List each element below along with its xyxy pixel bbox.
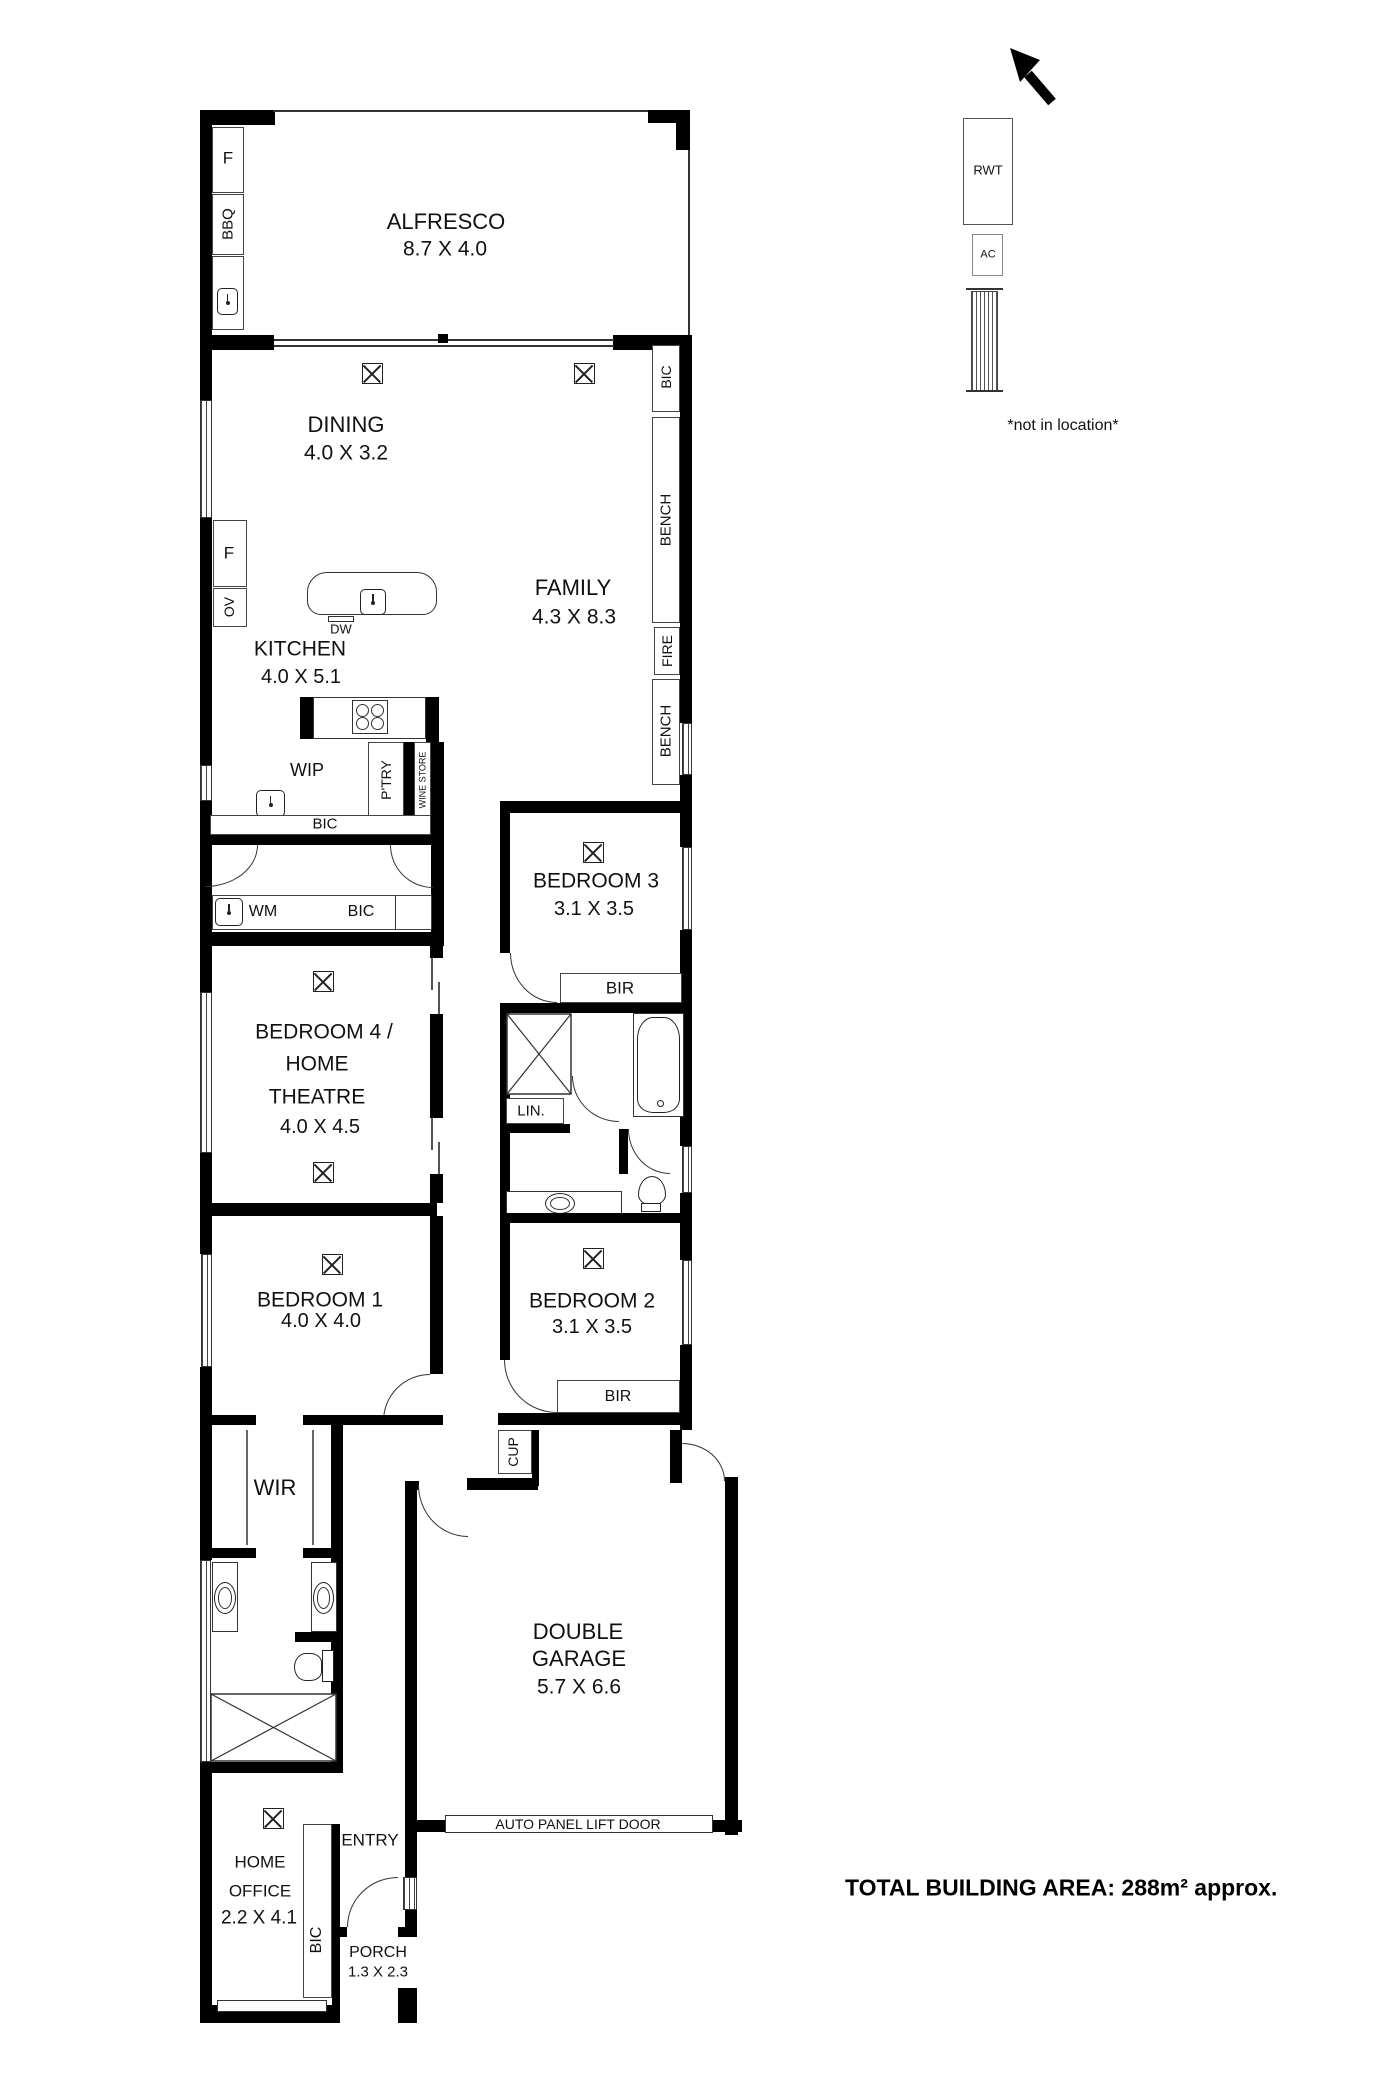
plan-shape bbox=[322, 1650, 334, 1682]
wall bbox=[200, 1367, 212, 1560]
north-arrow-icon bbox=[1000, 40, 1072, 112]
wall bbox=[500, 1003, 684, 1013]
bench-lower-label: BENCH bbox=[659, 705, 674, 758]
shower-icon bbox=[210, 1693, 337, 1762]
island-sink-icon bbox=[360, 589, 386, 615]
wall bbox=[500, 1223, 510, 1360]
window bbox=[682, 1146, 692, 1193]
room-label-garage: DOUBLE bbox=[533, 1621, 623, 1643]
door-arc bbox=[572, 1076, 619, 1122]
wall bbox=[405, 1773, 417, 1877]
wall bbox=[204, 1415, 256, 1425]
wall bbox=[204, 932, 444, 946]
toilet-icon bbox=[636, 1176, 670, 1212]
wall bbox=[680, 1193, 692, 1260]
window bbox=[682, 723, 692, 775]
wall bbox=[204, 1203, 437, 1216]
wall bbox=[680, 335, 692, 723]
wall bbox=[500, 801, 683, 813]
plan-shape bbox=[637, 1017, 680, 1113]
window bbox=[200, 400, 212, 518]
basin-icon bbox=[545, 1193, 575, 1214]
bir-bed3-label: BIR bbox=[606, 980, 634, 997]
bic-entry-cell bbox=[303, 1824, 332, 1998]
window-recess bbox=[217, 2000, 327, 2012]
bic-dining-label: BIC bbox=[659, 365, 673, 388]
pantry-label: P'TRY bbox=[379, 760, 393, 800]
room-label-dining: DINING bbox=[308, 414, 385, 436]
wip-sink-icon bbox=[256, 790, 285, 817]
wall bbox=[725, 1477, 738, 1835]
door-arc bbox=[205, 845, 258, 887]
wall bbox=[500, 1213, 687, 1223]
wall bbox=[200, 1548, 256, 1558]
room-label-bedroom2: BEDROOM 2 bbox=[529, 1291, 655, 1312]
total-area-text: TOTAL BUILDING AREA: 288m² approx. bbox=[845, 1877, 1277, 1900]
room-dims-bedroom2: 3.1 X 3.5 bbox=[552, 1317, 632, 1337]
room-dims-bedroom3: 3.1 X 3.5 bbox=[554, 899, 634, 919]
wall bbox=[500, 1124, 570, 1133]
wall bbox=[200, 1762, 343, 1773]
floor-plan: ALFRESCO 8.7 X 4.0 F BBQ DINING 4.0 X 3.… bbox=[0, 0, 1400, 2100]
cavity-slider-door bbox=[427, 958, 446, 1014]
wall bbox=[204, 835, 437, 845]
door-arc bbox=[347, 1877, 398, 1927]
door-arc bbox=[682, 1443, 725, 1481]
door-arc bbox=[383, 1374, 430, 1421]
plan-shape bbox=[371, 704, 384, 717]
room-label-entry: ENTRY bbox=[341, 1832, 398, 1849]
room-label-home-office: HOME bbox=[235, 1854, 286, 1871]
robe-rail bbox=[312, 1430, 314, 1545]
room-label-alfresco: ALFRESCO bbox=[387, 211, 506, 233]
wall bbox=[670, 1430, 682, 1483]
plan-shape bbox=[356, 704, 369, 717]
room-dims-alfresco: 8.7 X 4.0 bbox=[403, 239, 487, 260]
wall bbox=[426, 697, 439, 742]
wall bbox=[300, 697, 313, 739]
wall bbox=[200, 518, 212, 765]
sidelight-window bbox=[403, 1877, 417, 1910]
not-in-location-note: *not in location* bbox=[1007, 418, 1118, 434]
wall bbox=[500, 813, 510, 953]
wall bbox=[538, 1413, 687, 1425]
fridge-label: F bbox=[224, 545, 234, 562]
room-label-wir: WIR bbox=[254, 1477, 297, 1499]
door-arc bbox=[510, 953, 557, 1003]
ceiling-fan-icon bbox=[263, 1808, 284, 1829]
plan-shape bbox=[356, 717, 369, 730]
bic-kitchen-label: BIC bbox=[312, 817, 337, 832]
room-label-bedroom4: BEDROOM 4 / bbox=[255, 1022, 393, 1043]
window bbox=[682, 847, 692, 930]
plan-shape bbox=[638, 1176, 666, 1206]
basin-icon bbox=[214, 1582, 236, 1614]
cooktop-icon bbox=[352, 700, 388, 734]
room-label-home-office: OFFICE bbox=[229, 1883, 291, 1900]
door-arc bbox=[504, 1360, 557, 1413]
door-arc bbox=[628, 1129, 670, 1174]
room-label-wip: WIP bbox=[290, 761, 324, 779]
cavity-slider-door bbox=[427, 1118, 446, 1174]
ceiling-fan-icon bbox=[583, 1248, 604, 1269]
wall bbox=[200, 110, 212, 400]
door-arc bbox=[418, 1485, 468, 1537]
plan-shape bbox=[641, 1203, 661, 1212]
room-dims-bedroom4: 4.0 X 4.5 bbox=[280, 1117, 360, 1137]
wall bbox=[200, 1762, 212, 2023]
bbq-label: BBQ bbox=[221, 208, 236, 240]
wall bbox=[404, 742, 414, 818]
plan-shape bbox=[1028, 74, 1052, 102]
wall bbox=[204, 335, 274, 350]
toilet-icon bbox=[294, 1650, 334, 1682]
ceiling-fan-icon bbox=[313, 1162, 334, 1183]
room-dims-family: 4.3 X 8.3 bbox=[532, 607, 616, 628]
room-label-bedroom4: THEATRE bbox=[269, 1087, 365, 1108]
wall bbox=[430, 1216, 443, 1374]
room-dims-garage: 5.7 X 6.6 bbox=[537, 1677, 621, 1698]
wall bbox=[331, 1415, 343, 1555]
ceiling-fan-icon bbox=[574, 363, 595, 384]
plan-shape bbox=[431, 958, 433, 990]
bench-upper-label: BENCH bbox=[659, 494, 674, 547]
plan-shape bbox=[657, 1100, 664, 1107]
wall bbox=[619, 1129, 628, 1174]
room-label-kitchen: KITCHEN bbox=[254, 639, 346, 660]
room-dims-home-office: 2.2 X 4.1 bbox=[221, 1909, 297, 1928]
room-dims-bedroom1: 4.0 X 4.0 bbox=[281, 1311, 361, 1331]
laundry-band bbox=[212, 895, 432, 930]
dishwasher-label: DW bbox=[330, 623, 352, 636]
cupboard-label: CUP bbox=[506, 1437, 520, 1467]
laundry-trough-icon bbox=[215, 898, 243, 926]
wall bbox=[332, 1824, 340, 2023]
window bbox=[682, 1260, 692, 1345]
room-dims-porch: 1.3 X 2.3 bbox=[348, 1965, 408, 1980]
bic-entry-label: BIC bbox=[309, 1927, 325, 1954]
wall bbox=[200, 110, 275, 125]
fire-label: FIRE bbox=[660, 635, 674, 667]
robe-rail bbox=[246, 1430, 248, 1545]
wall bbox=[340, 1927, 347, 1937]
wm-label: WM bbox=[249, 904, 277, 920]
wall bbox=[303, 1415, 443, 1425]
wall bbox=[498, 1413, 538, 1425]
louver-panel bbox=[971, 291, 998, 391]
plan-shape bbox=[438, 1142, 440, 1174]
plan-shape bbox=[438, 982, 440, 1014]
room-label-garage: GARAGE bbox=[532, 1648, 626, 1670]
room-dims-dining: 4.0 X 3.2 bbox=[304, 443, 388, 464]
plan-shape bbox=[371, 717, 384, 730]
rwt-label: RWT bbox=[973, 164, 1002, 177]
room-label-bedroom4: HOME bbox=[286, 1054, 349, 1075]
ceiling-fan-icon bbox=[322, 1254, 343, 1275]
ac-label: AC bbox=[980, 250, 995, 261]
wine-store-label: WINE STORE bbox=[419, 752, 428, 809]
wall-line bbox=[966, 288, 1003, 290]
ceiling-fan-icon bbox=[313, 971, 334, 992]
bir-bed2-label: BIR bbox=[605, 1389, 632, 1405]
wall-line bbox=[395, 895, 396, 930]
basin-icon bbox=[313, 1582, 334, 1614]
wall-line bbox=[688, 150, 690, 336]
window bbox=[201, 1254, 212, 1367]
wall-line bbox=[966, 390, 1003, 392]
fridge-label: F bbox=[223, 150, 233, 167]
ceiling-fan-icon bbox=[362, 363, 383, 384]
wall bbox=[398, 1988, 417, 2023]
door-arc bbox=[390, 845, 433, 888]
room-label-bedroom3: BEDROOM 3 bbox=[533, 871, 659, 892]
linen-label: LIN. bbox=[517, 1104, 545, 1119]
ceiling-fan-icon bbox=[583, 842, 604, 863]
shower-icon bbox=[506, 1013, 572, 1095]
window bbox=[200, 992, 212, 1153]
room-label-bedroom1: BEDROOM 1 bbox=[257, 1290, 383, 1311]
wall bbox=[713, 1820, 742, 1832]
wall bbox=[417, 1820, 445, 1832]
wall bbox=[467, 1478, 538, 1490]
alfresco-sink-icon bbox=[217, 288, 238, 315]
window bbox=[200, 765, 212, 801]
bathtub-icon bbox=[633, 1013, 684, 1117]
wall bbox=[398, 1927, 417, 1937]
room-dims-kitchen: 4.0 X 5.1 bbox=[261, 667, 341, 687]
wall bbox=[295, 1632, 343, 1642]
plan-shape bbox=[294, 1653, 322, 1681]
wall bbox=[676, 110, 690, 150]
oven-label: OV bbox=[222, 597, 236, 617]
garage-door-label: AUTO PANEL LIFT DOOR bbox=[495, 1817, 660, 1831]
wall bbox=[438, 334, 448, 343]
plan-shape bbox=[431, 1118, 433, 1150]
bic-laundry-label: BIC bbox=[348, 904, 375, 920]
room-label-family: FAMILY bbox=[535, 577, 612, 599]
wall-line bbox=[273, 110, 649, 112]
stacker-door bbox=[274, 345, 614, 347]
room-label-porch: PORCH bbox=[349, 1945, 407, 1961]
